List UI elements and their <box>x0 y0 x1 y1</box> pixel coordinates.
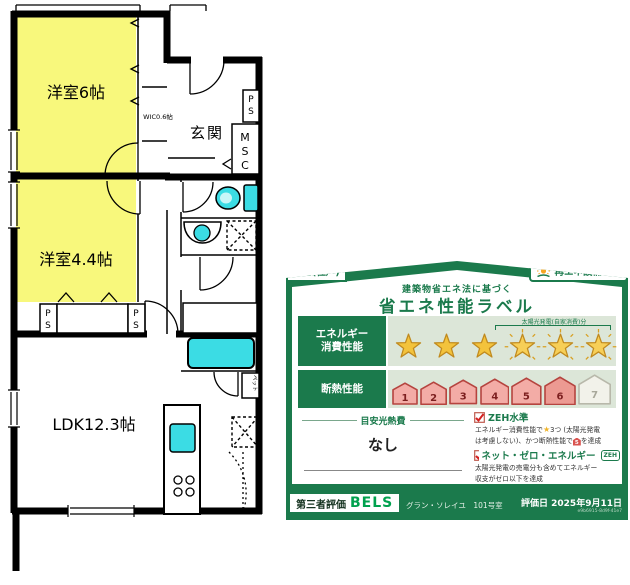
svg-text:2: 2 <box>430 392 437 403</box>
balcony-edges <box>16 5 206 11</box>
msc-letter-c: C <box>241 159 249 172</box>
kitchen-counter <box>164 405 200 514</box>
insulation-level-3: 3 <box>449 379 477 405</box>
ps-right-letter-p: P <box>133 309 139 319</box>
zeh-level-desc: エネルギー消費性能で★3つ (太陽光発電 は考慮しない)、かつ断熱性能で5を達成 <box>475 425 620 446</box>
net-zero-label: ネット・ゼロ・エネルギー <box>482 448 596 462</box>
ps-top-letter-s: S <box>248 107 254 117</box>
svg-text:5: 5 <box>523 391 530 402</box>
evaluator-label: 第三者評価 <box>296 496 346 511</box>
room-label-ldk: LDK12.3帖 <box>52 415 135 434</box>
checkbox-checked-icon <box>474 450 479 461</box>
insulation-level-6: 6 <box>544 376 576 406</box>
fixtures <box>164 185 258 514</box>
energy-stars-area: 太陽光発電(自家消費)分 <box>388 316 616 366</box>
ps-left-letter-p: P <box>45 309 51 319</box>
zeh-column: ZEH水準 エネルギー消費性能で★3つ (太陽光発電 は考慮しない)、かつ断熱性… <box>474 408 620 486</box>
net-zero-row: ネット・ゼロ・エネルギー ZEH <box>474 448 620 462</box>
room-label-entrance: 玄関 <box>190 124 224 142</box>
evaluation-code: e9b6915-8d9f-41e7 <box>578 509 622 514</box>
label-card: 建築物省エネ法に基づく 省エネ性能ラベル エネルギー 消費性能 太陽光発電(自家… <box>292 258 622 484</box>
insulation-row: 1234567 <box>392 374 611 405</box>
zeh-level-row: ZEH水準 <box>474 410 620 424</box>
svg-text:6: 6 <box>556 391 563 402</box>
ps-top-letter-p: P <box>248 95 254 105</box>
evaluator-box: 第三者評価 BELS <box>290 494 399 512</box>
room-label-bedroom1: 洋室6帖 <box>47 83 105 102</box>
insulation-level-2: 2 <box>420 381 447 405</box>
star-icon <box>428 327 465 365</box>
kitchen-sink-icon <box>170 424 195 452</box>
star-icon <box>466 327 503 365</box>
label-title: 省エネ性能ラベル <box>292 293 622 317</box>
room-label-wic: WIC0.6帖 <box>143 112 173 121</box>
zeh-level-label: ZEH水準 <box>488 410 528 424</box>
insulation-grade-icon: 5 <box>573 438 581 446</box>
ps-left-letter-s: S <box>45 321 51 331</box>
insulation-level-5: 5 <box>511 377 542 405</box>
svg-text:4: 4 <box>491 392 498 403</box>
washbasin-bowl-icon <box>194 225 210 241</box>
evaluation-date: 評価日 2025年9月11日 <box>521 496 622 509</box>
stars-row <box>390 327 617 365</box>
utility-cost-value: なし <box>302 434 464 455</box>
insulation-level-1: 1 <box>392 382 418 405</box>
divider-line <box>304 470 462 471</box>
star-solar-icon <box>580 327 617 365</box>
pet-label: ペット <box>251 375 258 392</box>
insulation-level-4: 4 <box>480 378 510 405</box>
bedroom2-area <box>16 178 136 302</box>
svg-text:3: 3 <box>460 392 467 403</box>
toilet-tank-icon <box>244 185 258 211</box>
svg-text:1: 1 <box>402 393 409 404</box>
bathtub-icon <box>188 338 254 368</box>
insulation-level-7: 7 <box>578 374 611 405</box>
ps-right-letter-s: S <box>133 321 139 331</box>
energy-label-panel: 建築物省エネ法に基づく 省エネ性能ラベル エネルギー 消費性能 太陽光発電(自家… <box>286 258 628 520</box>
checkbox-checked-icon <box>474 412 485 423</box>
svg-text:7: 7 <box>591 390 598 401</box>
msc-letter-s: S <box>242 145 249 158</box>
energy-consumption-header: エネルギー 消費性能 <box>298 316 386 366</box>
zeh-badge-icon: ZEH <box>601 450 620 461</box>
net-zero-desc: 太陽光発電の売電分も含めてエネルギー 収支がゼロ以下を達成 <box>475 463 620 484</box>
insulation-header: 断熱性能 <box>298 370 386 408</box>
star-solar-icon <box>542 327 579 365</box>
star-solar-icon <box>504 327 541 365</box>
insulation-area: 1234567 <box>388 370 616 408</box>
building-name: グラン・ソレイユ 101号室 <box>406 500 503 511</box>
page: 洋室6帖 洋室4.4帖 LDK12.3帖 玄関 WIC0.6帖 P S M S … <box>0 0 630 585</box>
utility-cost-header: 目安光熱費 <box>302 414 464 427</box>
room-label-bedroom2: 洋室4.4帖 <box>39 250 112 269</box>
bels-logo: BELS <box>350 495 393 511</box>
star-icon <box>390 327 427 365</box>
msc-letter-m: M <box>240 131 250 144</box>
